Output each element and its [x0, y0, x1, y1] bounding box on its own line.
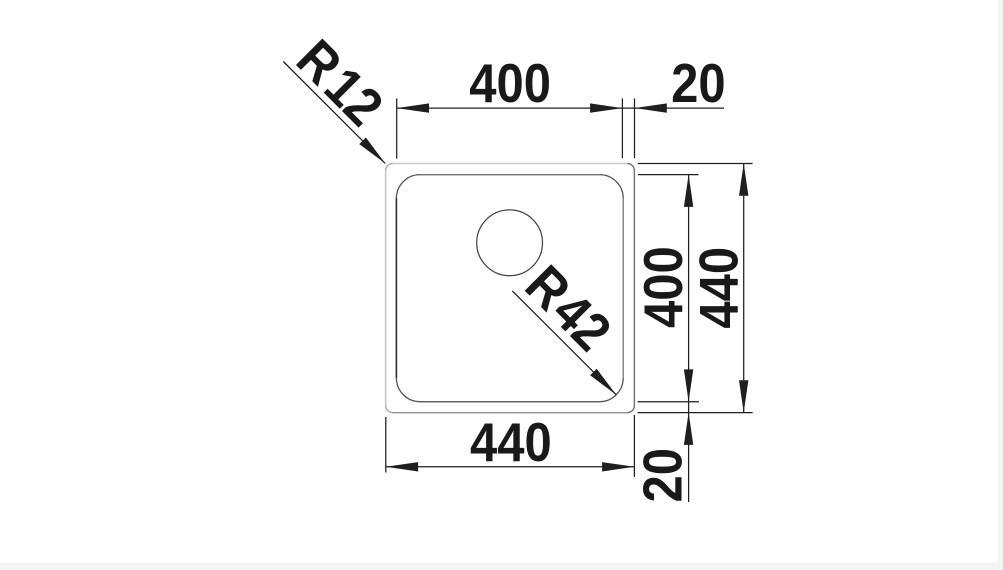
svg-text:400: 400 [469, 53, 551, 114]
svg-text:400: 400 [633, 246, 694, 328]
svg-text:20: 20 [671, 53, 725, 114]
svg-text:440: 440 [470, 412, 552, 473]
svg-text:440: 440 [688, 247, 749, 329]
svg-text:20: 20 [632, 448, 693, 502]
